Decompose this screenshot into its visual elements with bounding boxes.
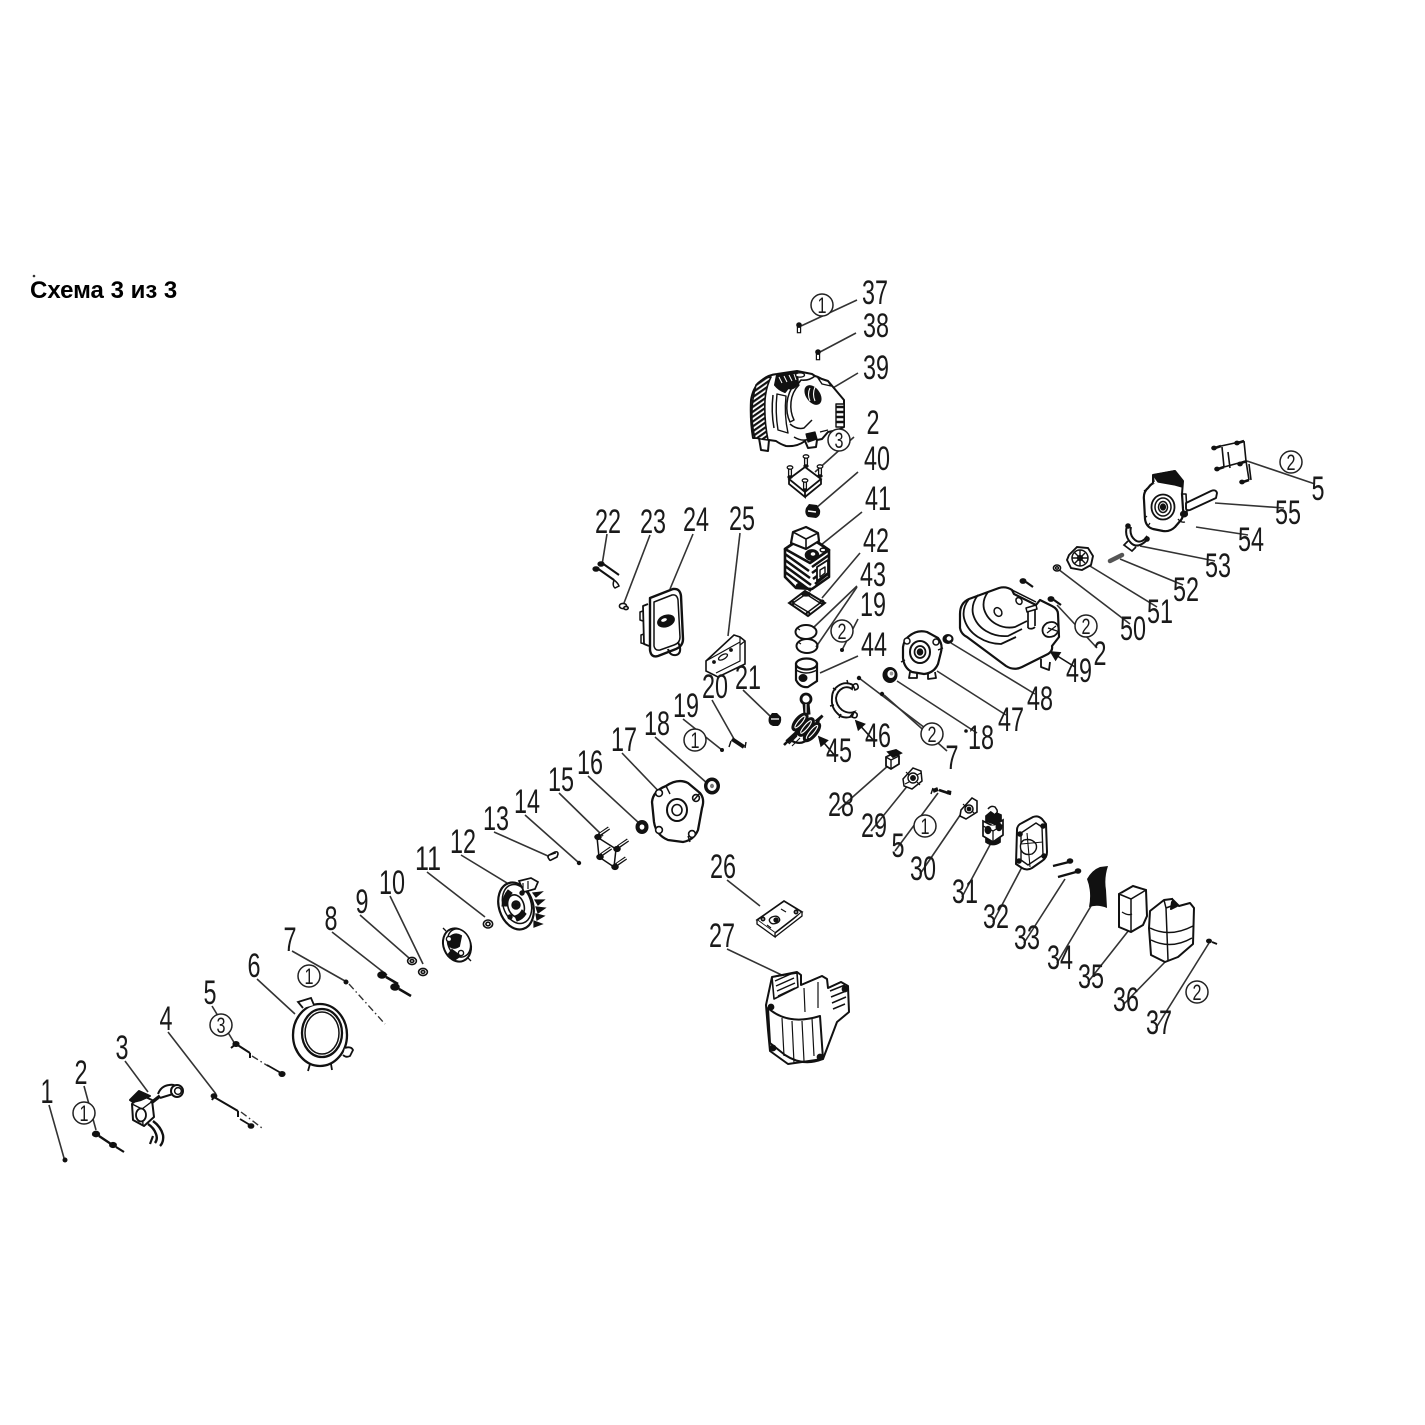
svg-text:50: 50 [1120,610,1146,648]
svg-text:2: 2 [1287,450,1296,475]
svg-text:17: 17 [611,721,637,759]
svg-text:46: 46 [865,717,891,755]
svg-text:22: 22 [595,503,621,541]
svg-text:16: 16 [577,744,603,782]
svg-text:2: 2 [867,404,880,442]
svg-text:2: 2 [75,1054,88,1092]
svg-text:5: 5 [204,974,217,1012]
svg-text:47: 47 [998,701,1024,739]
svg-text:1: 1 [921,814,930,839]
svg-text:9: 9 [356,883,369,921]
svg-text:2: 2 [838,619,847,644]
svg-text:45: 45 [826,732,852,770]
svg-text:25: 25 [729,500,755,538]
svg-text:42: 42 [863,522,889,560]
svg-text:28: 28 [828,786,854,824]
svg-text:3: 3 [217,1013,226,1038]
svg-text:39: 39 [863,349,889,387]
svg-text:2: 2 [1094,635,1107,673]
svg-text:12: 12 [450,823,476,861]
svg-text:24: 24 [683,501,709,539]
svg-text:54: 54 [1238,521,1264,559]
svg-text:1: 1 [305,964,314,989]
svg-text:14: 14 [514,783,540,821]
svg-text:38: 38 [863,307,889,345]
svg-text:49: 49 [1066,652,1092,690]
svg-text:53: 53 [1205,547,1231,585]
svg-text:20: 20 [702,668,728,706]
svg-text:19: 19 [673,687,699,725]
svg-text:5: 5 [1312,470,1325,508]
svg-text:5: 5 [892,827,905,865]
svg-text:30: 30 [910,850,936,888]
svg-text:19: 19 [860,586,886,624]
svg-text:3: 3 [835,428,844,453]
svg-text:55: 55 [1275,494,1301,532]
svg-text:52: 52 [1173,571,1199,609]
svg-text:1: 1 [41,1073,54,1111]
svg-text:13: 13 [483,800,509,838]
svg-text:1: 1 [691,728,700,753]
svg-text:2: 2 [1193,980,1202,1005]
svg-text:4: 4 [160,1000,173,1038]
svg-text:1: 1 [818,293,827,318]
svg-text:29: 29 [861,807,887,845]
svg-text:11: 11 [415,840,441,878]
svg-text:27: 27 [709,917,735,955]
svg-text:2: 2 [928,722,937,747]
svg-text:2: 2 [1082,614,1091,639]
svg-text:8: 8 [325,900,338,938]
svg-text:32: 32 [983,898,1009,936]
svg-text:23: 23 [640,503,666,541]
svg-text:7: 7 [284,921,297,959]
svg-text:10: 10 [379,864,405,902]
svg-text:7: 7 [946,739,959,777]
svg-text:21: 21 [735,659,761,697]
svg-text:1: 1 [80,1101,89,1126]
svg-text:6: 6 [248,947,261,985]
svg-text:51: 51 [1147,593,1173,631]
svg-text:31: 31 [952,873,978,911]
svg-text:18: 18 [644,705,670,743]
svg-text:15: 15 [548,761,574,799]
svg-text:26: 26 [710,848,736,886]
svg-text:36: 36 [1113,981,1139,1019]
svg-text:3: 3 [116,1029,129,1067]
svg-text:34: 34 [1047,939,1073,977]
svg-text:48: 48 [1027,680,1053,718]
svg-text:37: 37 [1146,1004,1172,1042]
svg-text:Схема 3 из 3: Схема 3 из 3 [30,277,177,304]
svg-text:44: 44 [861,626,887,664]
svg-text:18: 18 [968,719,994,757]
svg-text:40: 40 [864,440,890,478]
svg-text:35: 35 [1078,958,1104,996]
svg-text:41: 41 [865,480,891,518]
svg-text:33: 33 [1014,919,1040,957]
